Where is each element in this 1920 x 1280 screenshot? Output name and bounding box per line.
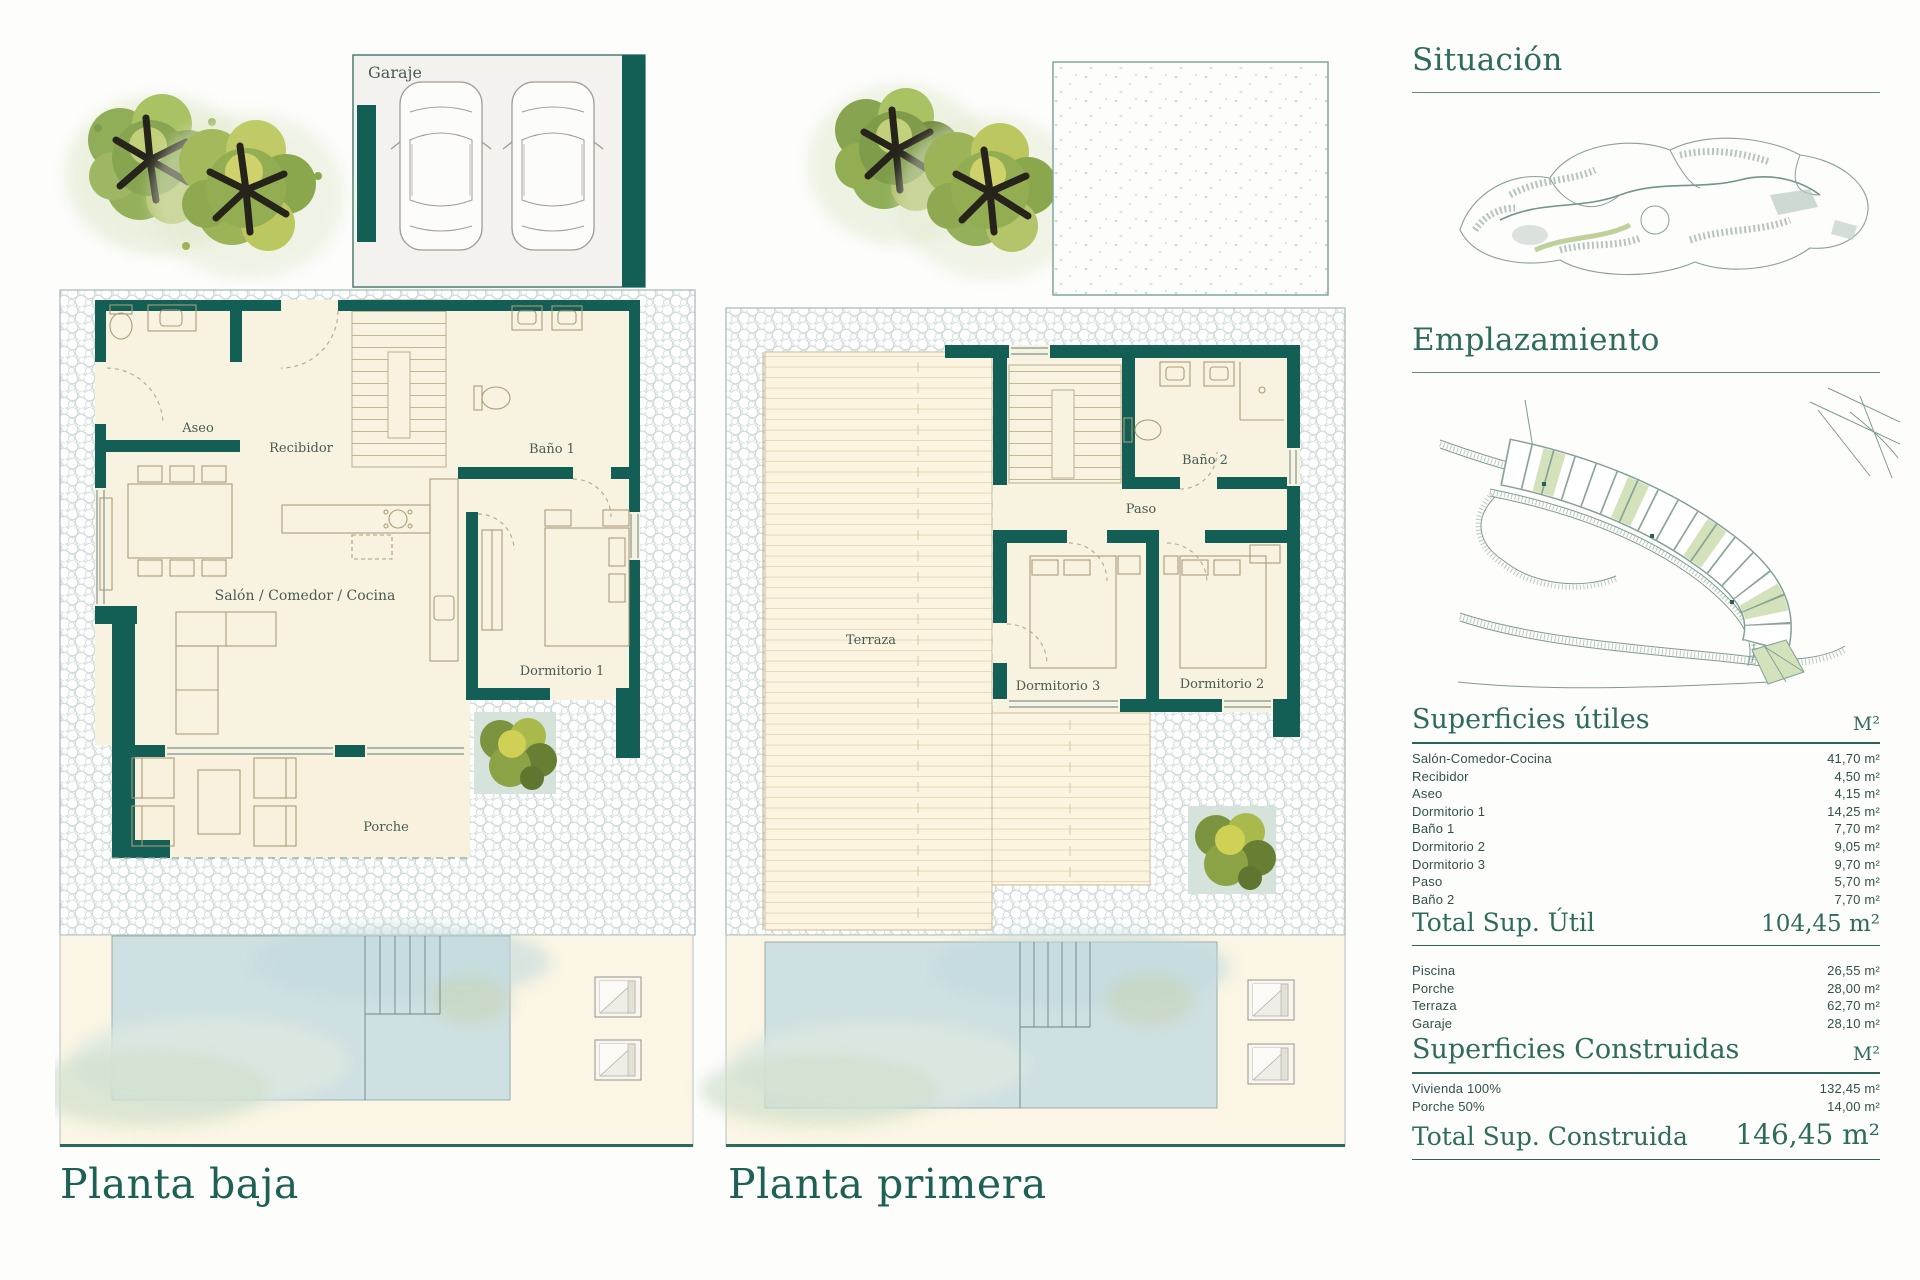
stairs	[352, 300, 446, 467]
emplazamiento-heading: Emplazamiento	[1412, 322, 1660, 358]
table-row: Baño 17,70 m²	[1412, 820, 1880, 838]
total-sup-construida: Total Sup. Construida 146,45 m²	[1412, 1118, 1880, 1160]
exteriores-table: Piscina26,55 m² Porche28,00 m² Terraza62…	[1412, 956, 1880, 1032]
floor-plan-planta-baja: Garaje	[55, 40, 700, 1155]
superficies-construidas-unit: M²	[1853, 1043, 1880, 1065]
table-row: Salón-Comedor-Cocina41,70 m²	[1412, 750, 1880, 768]
room-label-dormitorio3: Dormitorio 3	[1016, 679, 1101, 694]
situacion-rule	[1412, 92, 1880, 93]
superficies-utiles-unit: M²	[1853, 713, 1880, 735]
table-row: Paso5,70 m²	[1412, 873, 1880, 891]
table-row: Aseo4,15 m²	[1412, 785, 1880, 803]
plan-title-planta-primera: Planta primera	[728, 1160, 1047, 1208]
pool-area	[55, 924, 693, 1147]
room-label-terraza: Terraza	[846, 633, 896, 648]
room-label-recibidor: Recibidor	[269, 441, 334, 456]
roof-plan-square	[1053, 62, 1328, 295]
table-row: Recibidor4,50 m²	[1412, 768, 1880, 786]
room-label-bano2: Baño 2	[1182, 453, 1228, 468]
pool-area	[700, 930, 1345, 1147]
superficies-construidas-header: Superficies Construidas M²	[1412, 1034, 1880, 1074]
room-label-aseo: Aseo	[181, 421, 214, 436]
room-label-porche: Porche	[363, 820, 409, 835]
situacion-heading: Situación	[1412, 42, 1563, 78]
garage-block: Garaje	[353, 55, 645, 287]
table-row: Dormitorio 29,05 m²	[1412, 838, 1880, 856]
table-row: Baño 27,70 m²	[1412, 891, 1880, 909]
bush-icon	[474, 712, 557, 794]
floor-plan-planta-primera: Terraza Baño 2 Paso Dormitorio 3 Dormito…	[650, 40, 1360, 1155]
room-label-dormitorio2: Dormitorio 2	[1180, 677, 1265, 692]
superficies-utiles-table: Superficies útiles M² Salón-Comedor-Coci…	[1412, 704, 1880, 908]
room-label-paso: Paso	[1126, 502, 1157, 517]
table-row: Dormitorio 114,25 m²	[1412, 803, 1880, 821]
room-label-salon: Salón / Comedor / Cocina	[215, 588, 396, 604]
emplazamiento-rule	[1412, 372, 1880, 373]
superficies-utiles-title: Superficies útiles	[1412, 704, 1650, 735]
tree-icon	[150, 112, 346, 280]
emplazamiento-map	[1430, 382, 1900, 702]
table-row: Porche28,00 m²	[1412, 980, 1880, 998]
table-row: Piscina26,55 m²	[1412, 962, 1880, 980]
table-row: Porche 50%14,00 m²	[1412, 1098, 1880, 1116]
room-label-bano1: Baño 1	[529, 442, 575, 457]
table-row: Garaje28,10 m²	[1412, 1015, 1880, 1033]
total-sup-util: Total Sup. Útil 104,45 m²	[1412, 908, 1880, 946]
superficies-construidas-table: Superficies Construidas M² Vivienda 100%…	[1412, 1034, 1880, 1115]
situacion-map	[1440, 100, 1900, 305]
table-row: Dormitorio 39,70 m²	[1412, 856, 1880, 874]
table-row: Vivienda 100%132,45 m²	[1412, 1080, 1880, 1098]
garage-label: Garaje	[368, 63, 422, 82]
plan-title-planta-baja: Planta baja	[60, 1160, 299, 1208]
table-row: Terraza62,70 m²	[1412, 997, 1880, 1015]
superficies-utiles-header: Superficies útiles M²	[1412, 704, 1880, 744]
superficies-construidas-title: Superficies Construidas	[1412, 1034, 1739, 1065]
bush-icon	[1188, 806, 1276, 894]
stairs	[1009, 365, 1121, 483]
room-label-dormitorio1: Dormitorio 1	[520, 664, 605, 679]
brochure-page: Garaje	[0, 0, 1920, 1280]
